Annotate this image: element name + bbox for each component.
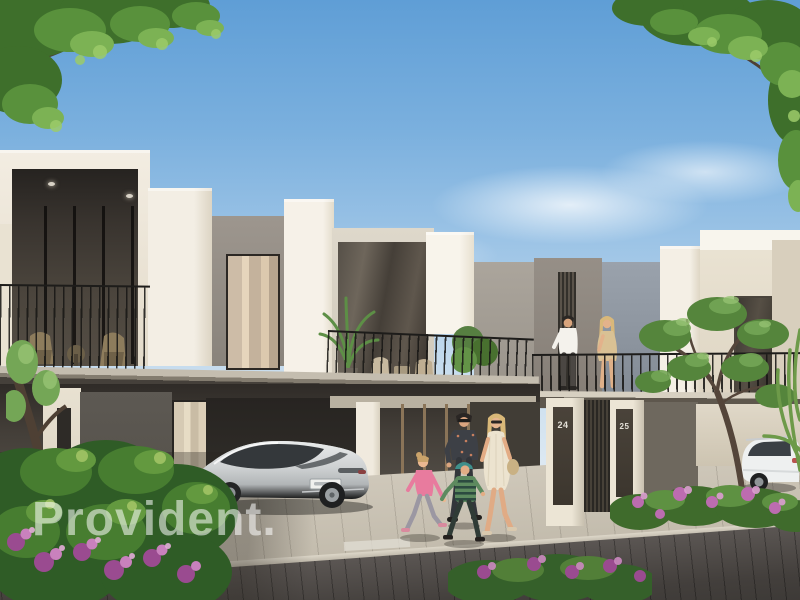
unit-24-plaque: 24 — [553, 407, 573, 505]
tree-canopy-top-left — [0, 0, 250, 150]
striped-sweater — [455, 476, 476, 502]
palm-fronds-right-edge — [756, 300, 800, 480]
curtained-window — [226, 254, 280, 370]
girl-walking — [401, 452, 447, 532]
ground-louvre-screen — [584, 400, 610, 512]
car-taillight — [358, 470, 366, 474]
people-shadows — [400, 523, 516, 549]
tree-canopy-top-right — [608, 0, 800, 245]
flower-bush-bottom-right — [448, 546, 652, 600]
white-pillar — [148, 188, 212, 366]
provident-watermark: Provident. — [32, 492, 277, 547]
boy-walking — [442, 462, 485, 542]
architectural-render-scene: 24 25 — [0, 0, 800, 600]
woman-walking — [482, 414, 519, 536]
downlight — [48, 182, 55, 186]
unit-24-number: 24 — [557, 420, 568, 430]
tote-bag — [507, 459, 519, 475]
downlight — [126, 194, 133, 198]
family-walking — [392, 408, 527, 554]
